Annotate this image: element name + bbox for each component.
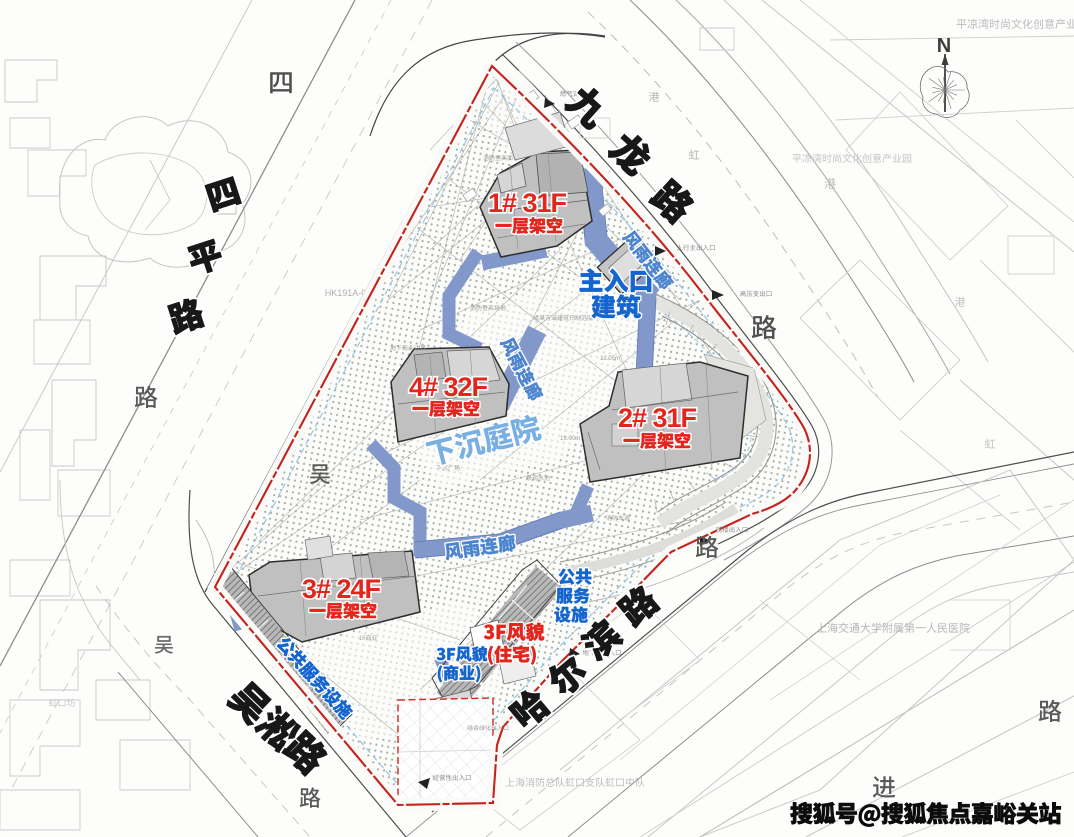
svg-text:3# 24F: 3# 24F [302, 574, 381, 604]
svg-text:4# 32F: 4# 32F [409, 372, 488, 402]
svg-text:N: N [937, 35, 951, 57]
svg-text:2# 31F: 2# 31F [618, 403, 697, 433]
svg-text:13.05m: 13.05m [600, 356, 620, 362]
svg-text:19.00m: 19.00m [560, 436, 580, 442]
svg-text:1# 31F: 1# 31F [488, 188, 567, 218]
